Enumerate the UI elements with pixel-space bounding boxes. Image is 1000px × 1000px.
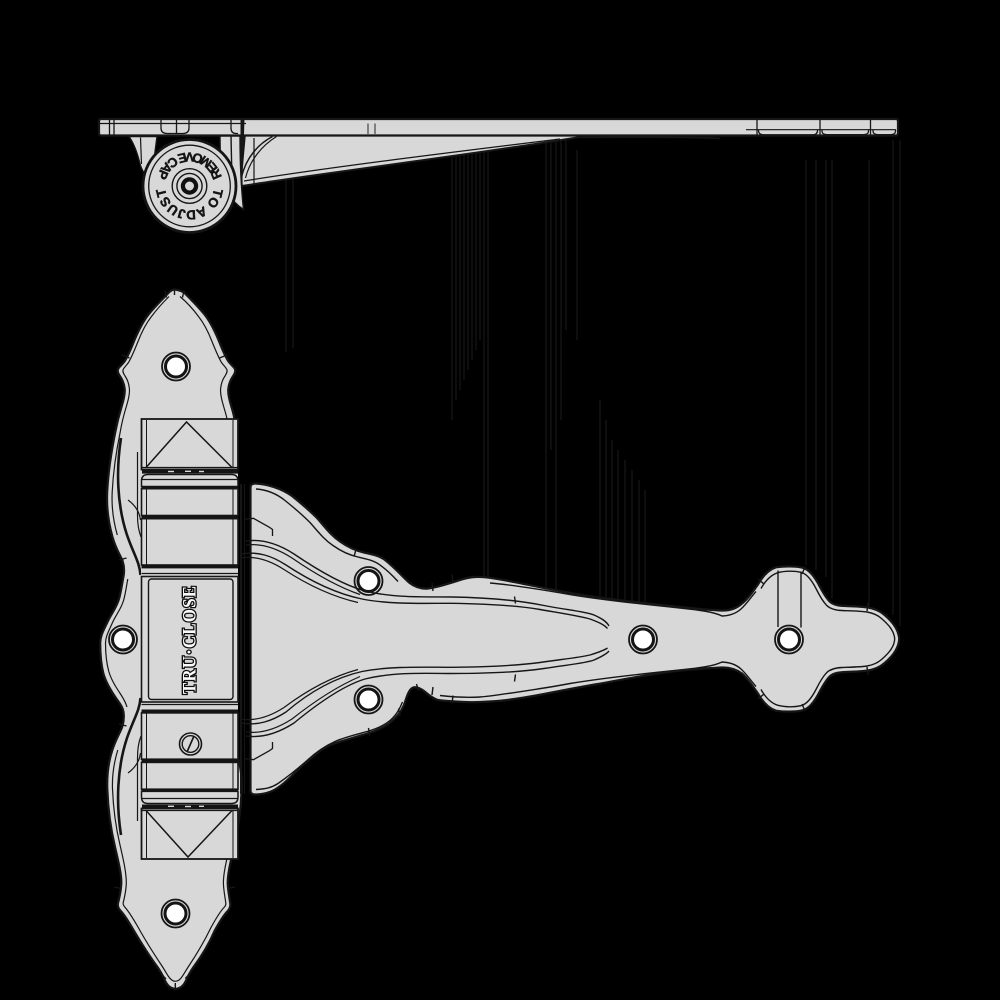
svg-text:TRU·CLOSE: TRU·CLOSE: [179, 585, 200, 694]
